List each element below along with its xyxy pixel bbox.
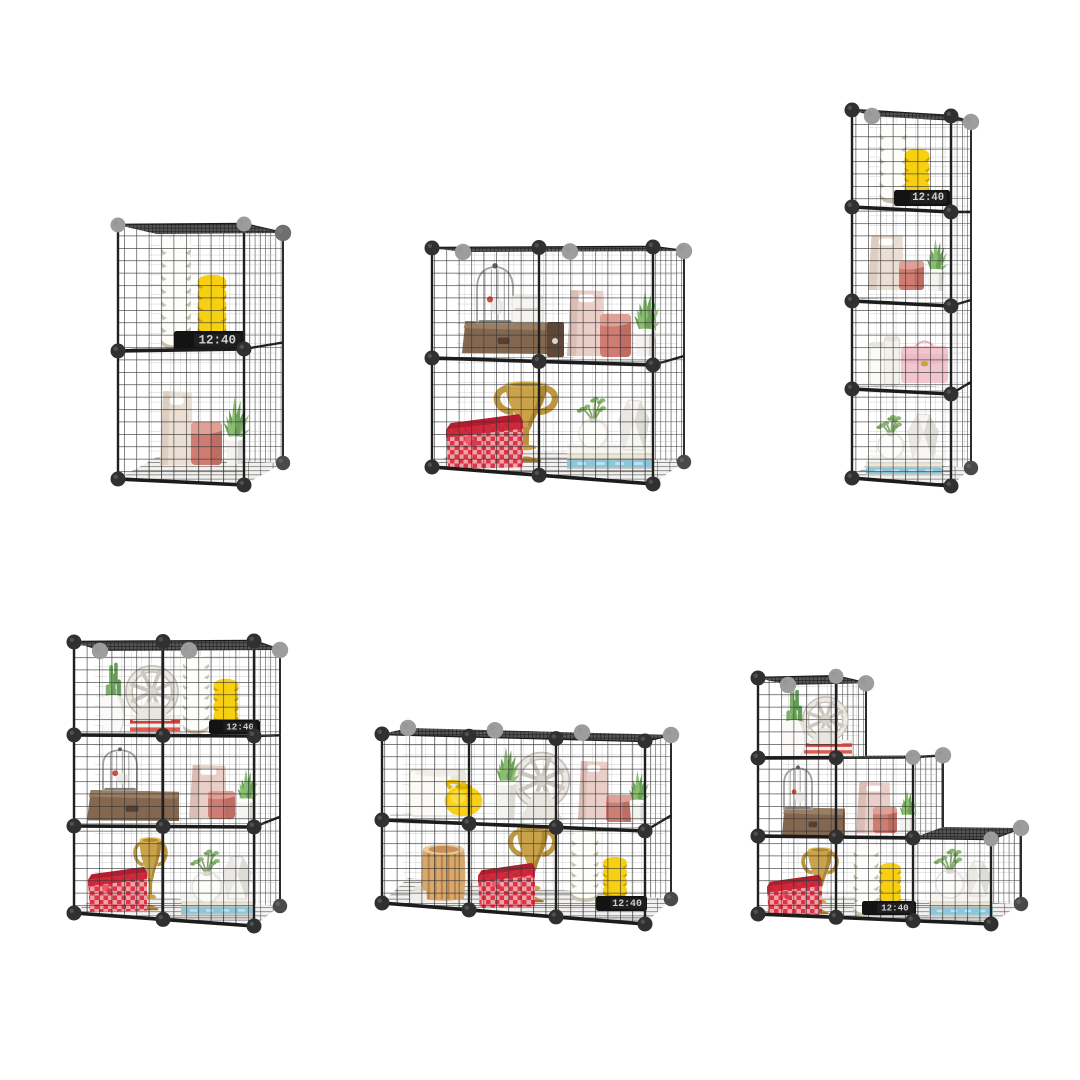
svg-text:12:40: 12:40 — [199, 334, 237, 348]
svg-text:12:40: 12:40 — [912, 192, 944, 204]
svg-text:12:40: 12:40 — [881, 903, 909, 914]
svg-text:12:40: 12:40 — [612, 898, 642, 909]
